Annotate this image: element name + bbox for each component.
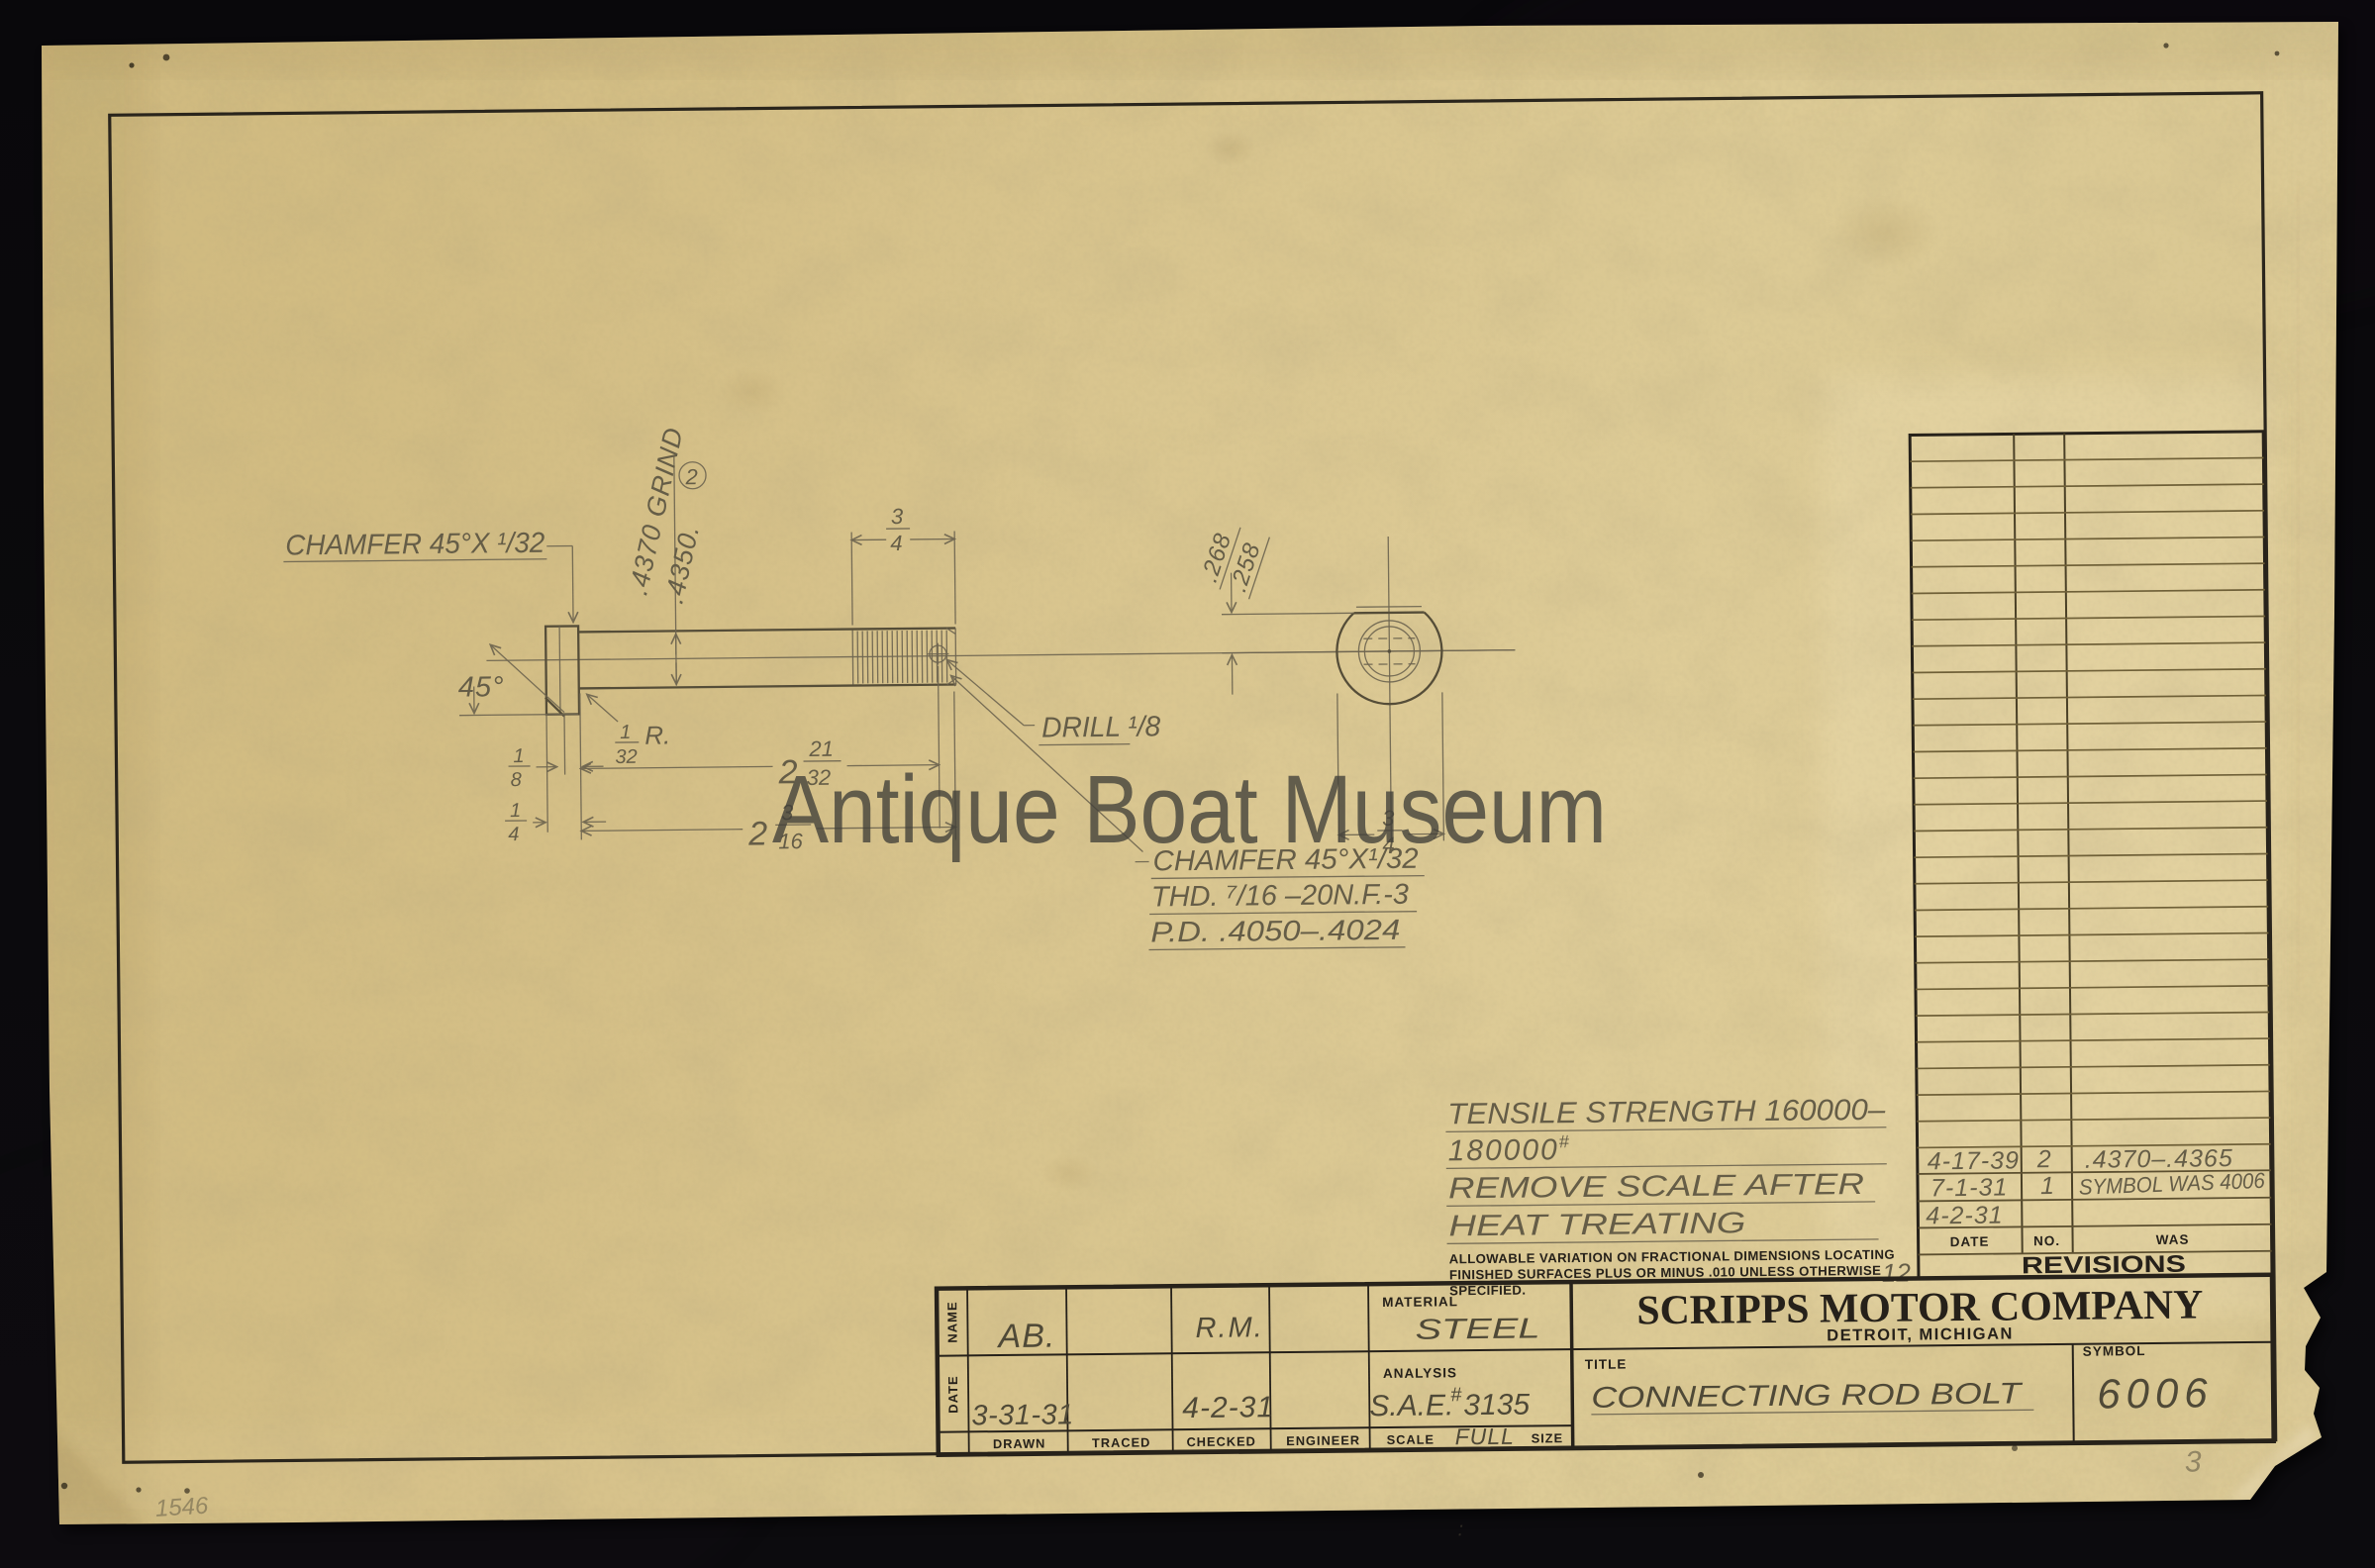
svg-text:DRAWN: DRAWN — [993, 1436, 1045, 1452]
svg-text:2: 2 — [747, 815, 767, 852]
svg-text:MATERIAL: MATERIAL — [1382, 1294, 1458, 1310]
svg-text:ANALYSIS: ANALYSIS — [1383, 1365, 1457, 1381]
svg-text:HEAT TREATING: HEAT TREATING — [1448, 1207, 1745, 1242]
svg-text:4: 4 — [890, 531, 903, 555]
svg-text:STEEL: STEEL — [1415, 1313, 1539, 1345]
svg-text:1546: 1546 — [154, 1493, 210, 1522]
svg-text:7-1-31: 7-1-31 — [1930, 1174, 2009, 1203]
svg-text:THD. ⁷/16 –20N.F.-3: THD. ⁷/16 –20N.F.-3 — [1151, 879, 1409, 914]
svg-text:1: 1 — [510, 800, 521, 822]
svg-text:CHAMFER 45°X ¹/32: CHAMFER 45°X ¹/32 — [285, 528, 544, 562]
svg-text:2: 2 — [684, 464, 698, 489]
svg-text:3: 3 — [2185, 1445, 2202, 1478]
svg-text:DATE: DATE — [1950, 1234, 1990, 1249]
svg-text:CHECKED: CHECKED — [1186, 1433, 1255, 1449]
svg-text:4-17-39: 4-17-39 — [1928, 1146, 2020, 1175]
svg-text:P.D. .4050–.4024: P.D. .4050–.4024 — [1150, 915, 1400, 949]
svg-text:3135: 3135 — [1463, 1389, 1530, 1422]
svg-text:R.M.: R.M. — [1195, 1312, 1264, 1344]
svg-text:S.A.E.: S.A.E. — [1369, 1389, 1453, 1422]
svg-text:AB.: AB. — [996, 1317, 1055, 1355]
svg-text:#: # — [1450, 1384, 1462, 1406]
svg-text:DETROIT, MICHIGAN: DETROIT, MICHIGAN — [1827, 1324, 2014, 1344]
svg-text:NO.: NO. — [2033, 1233, 2060, 1248]
svg-text:32: 32 — [615, 746, 637, 768]
svg-text:45°: 45° — [458, 671, 505, 703]
svg-text:1: 1 — [2040, 1172, 2054, 1200]
svg-text:DRILL ¹/8: DRILL ¹/8 — [1041, 711, 1160, 743]
svg-text:1: 1 — [513, 745, 524, 767]
svg-text:2: 2 — [2036, 1145, 2051, 1173]
svg-text:180000#: 180000# — [1447, 1131, 1570, 1167]
svg-text:R.: R. — [644, 720, 670, 749]
svg-text:SCALE: SCALE — [1387, 1432, 1435, 1447]
svg-text:FULL: FULL — [1454, 1423, 1515, 1450]
svg-text:1: 1 — [620, 722, 631, 743]
svg-text:TRACED: TRACED — [1092, 1434, 1150, 1450]
svg-text:6006: 6006 — [2097, 1369, 2214, 1417]
svg-text:TITLE: TITLE — [1585, 1356, 1628, 1371]
svg-text:4: 4 — [508, 824, 519, 845]
svg-text:Antique Boat Museum: Antique Boat Museum — [772, 755, 1607, 863]
svg-text:8: 8 — [511, 769, 522, 791]
svg-text:DATE: DATE — [945, 1375, 960, 1414]
svg-text:ENGINEER: ENGINEER — [1286, 1432, 1360, 1448]
svg-text:NAME: NAME — [944, 1301, 959, 1342]
svg-text:12: 12 — [1882, 1258, 1912, 1288]
svg-text:REMOVE SCALE AFTER: REMOVE SCALE AFTER — [1448, 1168, 1864, 1205]
svg-text:TENSILE STRENGTH 160000–: TENSILE STRENGTH 160000– — [1447, 1094, 1886, 1131]
svg-text:4-2-31: 4-2-31 — [1182, 1391, 1274, 1424]
svg-text::: : — [1457, 1519, 1463, 1540]
svg-text:SIZE: SIZE — [1532, 1430, 1564, 1445]
svg-text:WAS: WAS — [2156, 1232, 2190, 1247]
svg-text:4-2-31: 4-2-31 — [1926, 1202, 2004, 1230]
svg-text:3: 3 — [891, 504, 904, 529]
svg-text:3-31-31: 3-31-31 — [971, 1399, 1074, 1431]
svg-text:CONNECTING ROD BOLT: CONNECTING ROD BOLT — [1591, 1377, 2025, 1415]
svg-text:SYMBOL: SYMBOL — [2083, 1343, 2146, 1359]
